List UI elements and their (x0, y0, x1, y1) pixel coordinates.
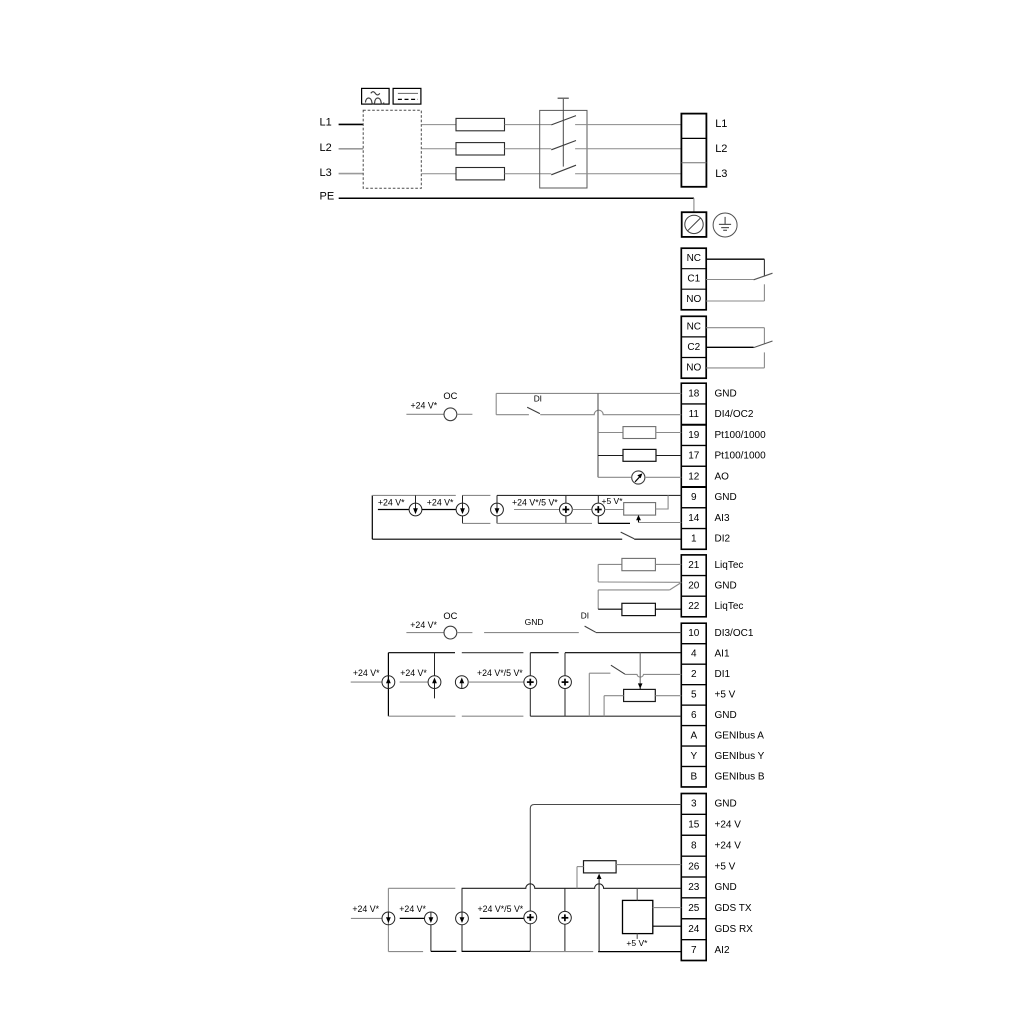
svg-text:18: 18 (688, 388, 700, 399)
svg-text:Pt100/1000: Pt100/1000 (715, 430, 767, 441)
svg-text:1: 1 (691, 534, 697, 545)
svg-text:GENIbus Y: GENIbus Y (715, 751, 765, 762)
svg-text:GND: GND (715, 710, 737, 721)
svg-text:GND: GND (715, 581, 737, 592)
svg-text:26: 26 (688, 861, 700, 872)
svg-text:+5 V: +5 V (715, 861, 736, 872)
svg-text:4: 4 (691, 649, 697, 660)
svg-text:21: 21 (688, 560, 700, 571)
svg-text:AI2: AI2 (715, 945, 730, 956)
svg-text:8: 8 (691, 840, 697, 851)
svg-text:+5 V*: +5 V* (626, 938, 648, 948)
svg-text:GENIbus A: GENIbus A (715, 730, 765, 741)
svg-text:22: 22 (688, 601, 700, 612)
svg-text:DI: DI (534, 394, 542, 404)
svg-text:DI: DI (581, 611, 589, 621)
svg-text:L3: L3 (320, 167, 332, 179)
svg-text:25: 25 (688, 903, 700, 914)
svg-text:DI4/OC2: DI4/OC2 (715, 409, 754, 420)
svg-text:C2: C2 (687, 342, 700, 353)
svg-text:+24 V*: +24 V* (378, 498, 405, 508)
svg-text:+24 V*/5 V*: +24 V*/5 V* (477, 668, 523, 678)
svg-text:+24 V*/5 V*: +24 V*/5 V* (512, 498, 558, 508)
svg-text:23: 23 (688, 882, 700, 893)
svg-text:AI1: AI1 (715, 649, 730, 660)
svg-text:GDS TX: GDS TX (715, 903, 752, 914)
svg-text:+24 V*: +24 V* (410, 620, 437, 630)
svg-text:15: 15 (688, 820, 700, 831)
svg-text:24: 24 (688, 924, 700, 935)
svg-text:NC: NC (687, 253, 701, 264)
svg-text:7: 7 (691, 945, 697, 956)
svg-text:3: 3 (691, 799, 697, 810)
svg-text:L2: L2 (715, 143, 727, 155)
svg-text:12: 12 (688, 471, 700, 482)
svg-text:+24 V: +24 V (715, 840, 742, 851)
svg-text:GND: GND (715, 882, 737, 893)
svg-text:L1: L1 (715, 118, 727, 130)
svg-text:AI3: AI3 (715, 513, 730, 524)
svg-text:L3: L3 (715, 168, 727, 180)
svg-text:+24 V*: +24 V* (400, 668, 427, 678)
svg-text:+24 V*/5 V*: +24 V*/5 V* (478, 904, 524, 914)
svg-text:+24 V: +24 V (715, 820, 742, 831)
svg-text:AO: AO (715, 471, 730, 482)
svg-text:C1: C1 (687, 274, 700, 285)
svg-text:GND: GND (715, 492, 737, 503)
svg-text:A: A (690, 730, 697, 741)
svg-text:DI2: DI2 (715, 534, 731, 545)
svg-text:OC: OC (443, 611, 457, 621)
svg-text:+24 V*: +24 V* (399, 904, 426, 914)
svg-text:GDS RX: GDS RX (715, 924, 754, 935)
svg-text:NC: NC (687, 321, 701, 332)
svg-text:+24 V*: +24 V* (411, 400, 438, 410)
svg-text:11: 11 (689, 409, 700, 420)
svg-text:10: 10 (688, 628, 700, 639)
svg-text:GENIbus B: GENIbus B (715, 771, 765, 782)
svg-text:PE: PE (320, 191, 335, 203)
svg-text:+24 V*: +24 V* (353, 668, 380, 678)
svg-text:OC: OC (443, 391, 457, 401)
svg-text:B: B (690, 771, 697, 782)
svg-text:19: 19 (688, 430, 700, 441)
svg-text:+24 V*: +24 V* (352, 904, 379, 914)
svg-text:DI3/OC1: DI3/OC1 (715, 628, 754, 639)
svg-text:14: 14 (688, 513, 700, 524)
svg-text:GND: GND (715, 388, 737, 399)
svg-text:2: 2 (691, 669, 697, 680)
svg-text:NO: NO (686, 362, 701, 373)
svg-text:L2: L2 (320, 142, 332, 154)
svg-text:NO: NO (686, 294, 701, 305)
svg-text:LiqTec: LiqTec (715, 560, 744, 571)
svg-text:5: 5 (691, 690, 697, 701)
svg-text:L1: L1 (320, 116, 332, 128)
svg-text:6: 6 (691, 710, 697, 721)
svg-text:LiqTec: LiqTec (715, 601, 744, 612)
svg-text:GND: GND (525, 617, 544, 627)
svg-text:17: 17 (688, 451, 700, 462)
svg-text:20: 20 (688, 581, 700, 592)
svg-text:GND: GND (715, 799, 737, 810)
svg-text:9: 9 (691, 492, 697, 503)
svg-text:+5 V: +5 V (715, 690, 736, 701)
svg-text:Y: Y (690, 751, 697, 762)
svg-text:+24 V*: +24 V* (427, 498, 454, 508)
svg-text:DI1: DI1 (715, 669, 731, 680)
svg-text:Pt100/1000: Pt100/1000 (715, 451, 767, 462)
svg-text:+5 V*: +5 V* (602, 496, 624, 506)
